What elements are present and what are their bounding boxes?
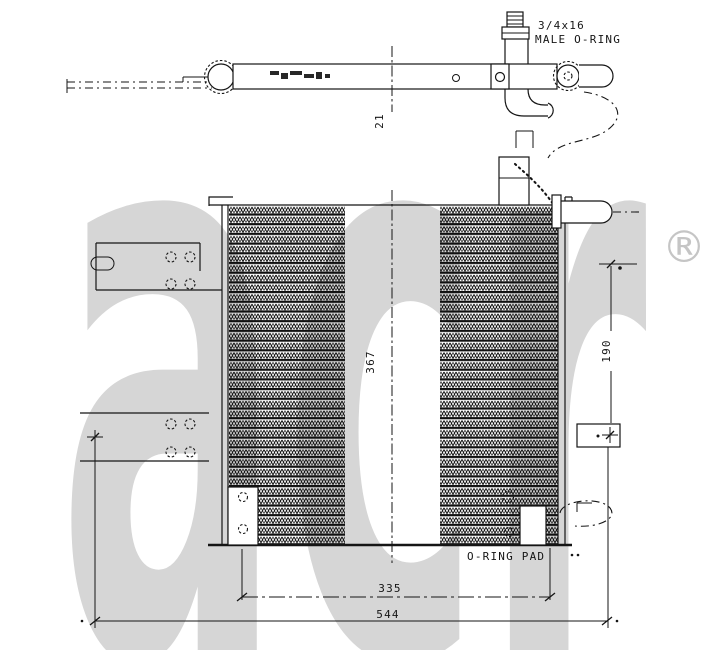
top-view-outlet-fitting [554, 62, 614, 91]
overall-width-dimension-label: 544 [376, 608, 399, 621]
registered-trademark-icon: ® [662, 222, 706, 273]
right-bracket [577, 424, 620, 447]
fitting-size-label: 3/4x16 [538, 19, 585, 32]
brand-watermark: acr ® [57, 0, 706, 650]
core-width-dimension-label: 335 [378, 582, 401, 595]
technical-drawing-canvas: acr ® [0, 0, 712, 650]
depth-dimension-label: 21 [373, 113, 386, 129]
oring-pad-label: O-RING PAD [467, 550, 545, 563]
brand-watermark-text: acr [57, 0, 649, 650]
fin-block-right [440, 206, 558, 545]
right-height-dimension-label: 190 [600, 339, 613, 362]
core-height-dimension-label: 367 [364, 350, 377, 373]
condenser-drawing: acr ® [0, 0, 712, 650]
fitting-type-label: MALE O-RING [535, 33, 621, 46]
bottom-left-pad [228, 487, 258, 545]
